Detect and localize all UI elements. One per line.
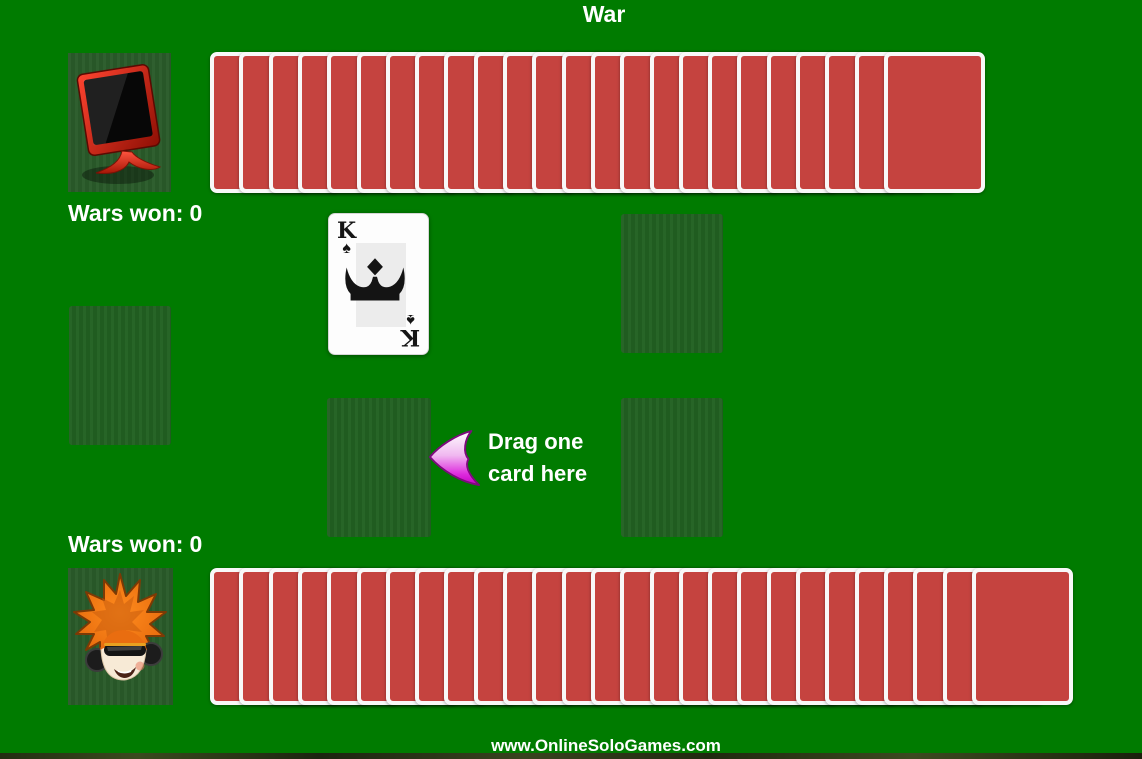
game-table: War Wars won:0 [0, 0, 1142, 759]
player-avatar [68, 568, 173, 705]
boy-with-headphones-icon [68, 568, 173, 705]
opponent-wars-won-value: 0 [189, 200, 202, 226]
opponent-wars-won-label: Wars won: [68, 200, 183, 226]
drag-hint-text: Drag one card here [488, 426, 587, 490]
card-rank: K [337, 220, 356, 242]
card-spot-right-top [621, 214, 723, 353]
played-card-king-of-spades: K ♠ K ♠ [328, 213, 429, 355]
opponent-card-stack [210, 52, 985, 193]
drag-hint-line2: card here [488, 458, 587, 490]
drag-hint-line1: Drag one [488, 426, 587, 458]
card-rank: K [401, 326, 420, 348]
bottom-edge-strip [0, 753, 1142, 759]
king-crown-icon [342, 257, 408, 307]
player-wars-won-value: 0 [189, 531, 202, 557]
player-wars-won-label: Wars won: [68, 531, 183, 557]
opponent-avatar [68, 53, 171, 192]
player-card-stack[interactable] [210, 568, 1074, 705]
card-spot-right-bottom [621, 398, 723, 537]
opponent-wars-won: Wars won:0 [68, 200, 202, 227]
drag-hint-arrow-icon [427, 429, 481, 487]
card-drop-zone[interactable] [327, 398, 431, 537]
computer-monitor-icon [68, 53, 171, 192]
player-wars-won: Wars won:0 [68, 531, 202, 558]
page-title: War [33, 1, 1142, 28]
card-spot-left [69, 306, 171, 445]
card-back [884, 52, 985, 193]
card-corner-top-left: K ♠ [337, 220, 356, 257]
card-back[interactable] [972, 568, 1073, 705]
card-corner-bottom-right: K ♠ [401, 311, 420, 348]
